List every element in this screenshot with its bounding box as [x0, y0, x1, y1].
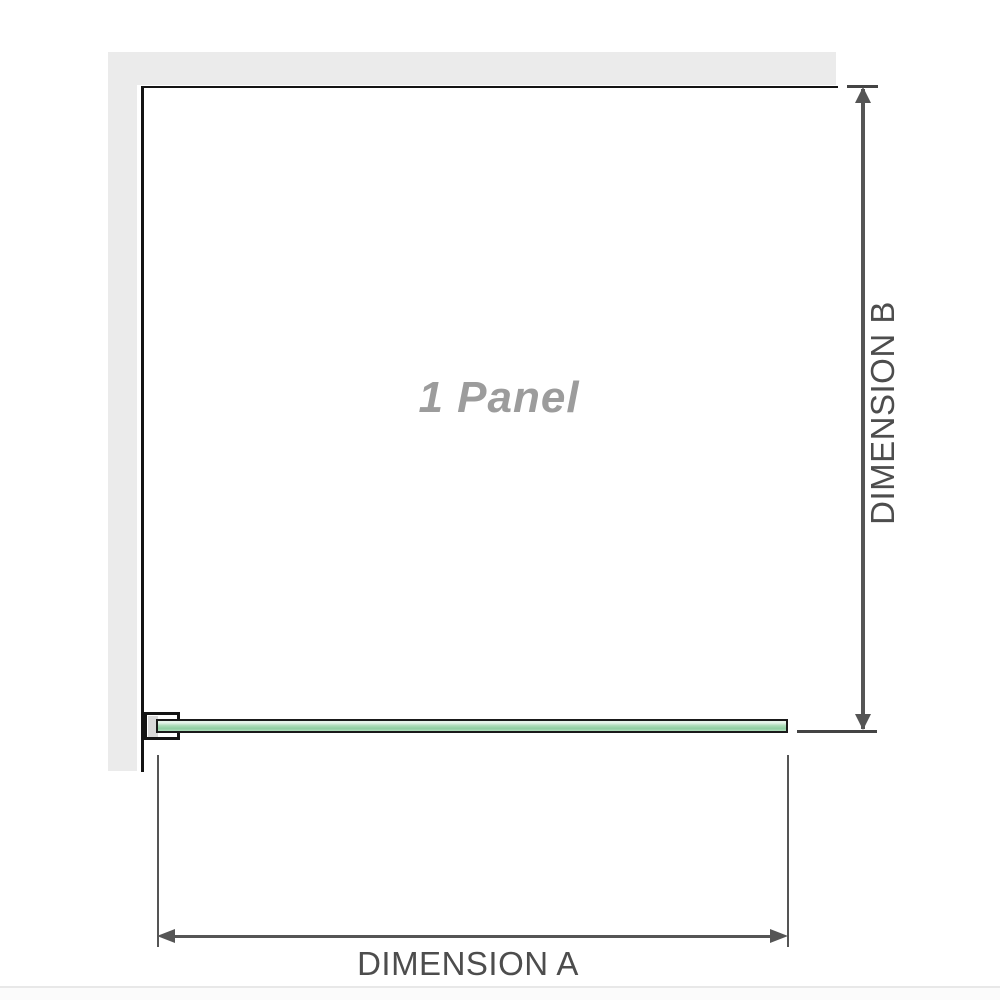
footer-separator [0, 986, 1000, 988]
dimension-a-extension-right [787, 755, 790, 947]
arrow-down-icon [855, 714, 871, 730]
wall-inner-edge-top [141, 86, 838, 89]
arrow-up-icon [855, 87, 871, 103]
wall-top [108, 52, 836, 85]
footer-strip [0, 988, 1000, 1000]
arrow-left-icon [157, 929, 175, 943]
diagram-canvas: 1 Panel DIMENSION B DIMENSION A [0, 0, 1000, 1000]
dimension-a-extension-left [157, 755, 160, 947]
panel-count-label: 1 Panel [349, 370, 649, 426]
dimension-a-label: DIMENSION A [353, 946, 583, 982]
arrow-right-icon [770, 929, 788, 943]
wall-left [108, 52, 137, 771]
dimension-a-line [162, 935, 783, 938]
glass-panel [156, 719, 788, 733]
dimension-b-label: DIMENSION B [865, 298, 901, 528]
wall-inner-edge-left [141, 86, 144, 772]
